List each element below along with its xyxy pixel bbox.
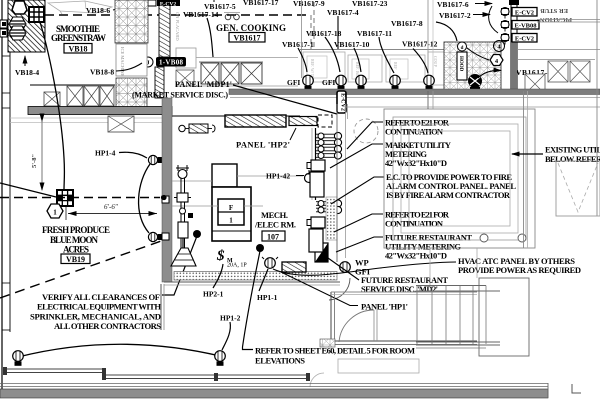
svg-text:CONTINUATION: CONTINUATION <box>385 219 444 229</box>
svg-text:REF: REF <box>393 62 398 70</box>
svg-text:20A, 1P: 20A, 1P <box>227 263 247 269</box>
svg-text:107: 107 <box>267 233 279 242</box>
svg-text:ELECTRICAL EQUIPMENT WITH: ELECTRICAL EQUIPMENT WITH <box>37 302 161 312</box>
svg-text:ICE MACHINE: ICE MACHINE <box>120 47 125 77</box>
svg-text:VB1617-14: VB1617-14 <box>183 10 219 19</box>
svg-text:VB1617-11: VB1617-11 <box>357 29 392 38</box>
svg-text:GFI: GFI <box>322 78 335 87</box>
svg-text:VB1617-12: VB1617-12 <box>402 40 438 49</box>
svg-text:42"Wx32"Hx10"D: 42"Wx32"Hx10"D <box>385 158 447 168</box>
svg-text:E-CV2: E-CV2 <box>515 36 534 43</box>
svg-text:VB1617-18: VB1617-18 <box>306 29 342 38</box>
svg-text:$: $ <box>216 248 225 264</box>
svg-text:E-VB08: E-VB08 <box>514 23 537 30</box>
svg-text:E-CV2: E-CV2 <box>340 93 346 111</box>
svg-text:IS BY FIRE ALARM CONTRACTOR: IS BY FIRE ALARM CONTRACTOR <box>386 190 511 200</box>
svg-text:VB18-4: VB18-4 <box>15 68 39 77</box>
svg-text:4: 4 <box>498 45 501 51</box>
svg-text:GREENSTRAW: GREENSTRAW <box>51 33 106 43</box>
svg-text:VB18-6: VB18-6 <box>86 6 110 15</box>
svg-text:ER STUB: ER STUB <box>540 7 568 14</box>
svg-text:ELEVATIONS: ELEVATIONS <box>255 356 305 366</box>
svg-text:EXISTING UTIL: EXISTING UTIL <box>545 145 600 155</box>
svg-text:PROVIDE POWER AS REQUIRED: PROVIDE POWER AS REQUIRED <box>458 265 581 275</box>
svg-text:VERIFY ALL CLEARANCES OF: VERIFY ALL CLEARANCES OF <box>42 292 160 302</box>
svg-text:HP2-1: HP2-1 <box>203 290 224 299</box>
svg-text:VB19: VB19 <box>66 255 85 264</box>
svg-text:REFER TO SHEET E60, DETAIL 5 F: REFER TO SHEET E60, DETAIL 5 FOR ROOM <box>255 346 415 356</box>
svg-text:6'-6": 6'-6" <box>104 203 118 211</box>
svg-text:VB18-8: VB18-8 <box>90 68 114 77</box>
svg-text:VB1617-23: VB1617-23 <box>352 0 388 8</box>
svg-text:F: F <box>229 204 233 212</box>
svg-text:HP1-4: HP1-4 <box>95 149 116 158</box>
svg-text:MECH.: MECH. <box>261 210 288 220</box>
svg-text:E-CV2: E-CV2 <box>515 10 534 17</box>
svg-text:VB1617-1: VB1617-1 <box>282 40 314 49</box>
svg-text:HP1-2: HP1-2 <box>220 314 241 323</box>
svg-text:VB1617: VB1617 <box>233 34 260 43</box>
svg-text:HOOD: HOOD <box>458 56 463 72</box>
svg-text:(MARKET SERVICE DISC.): (MARKET SERVICE DISC.) <box>132 91 228 100</box>
svg-text:PANEL 'MDP1': PANEL 'MDP1' <box>175 80 232 89</box>
svg-text:VB1617-6: VB1617-6 <box>437 0 469 9</box>
svg-text:COUP: COUP <box>433 56 438 67</box>
svg-text:FRESH PRODUCE: FRESH PRODUCE <box>42 225 110 235</box>
svg-text:PANEL 'HP2': PANEL 'HP2' <box>236 140 290 150</box>
svg-text:1-VB08: 1-VB08 <box>159 59 184 67</box>
svg-text:VB1617-9: VB1617-9 <box>293 0 325 8</box>
svg-text:BELOW. REFER: BELOW. REFER <box>545 154 600 164</box>
svg-text:VB18: VB18 <box>68 45 87 54</box>
svg-text:HP1-1: HP1-1 <box>257 293 278 302</box>
svg-text:GFI: GFI <box>287 78 300 87</box>
svg-text:/ELEC RM.: /ELEC RM. <box>254 220 296 230</box>
svg-text:ON PLACARD: ON PLACARD <box>175 12 180 41</box>
svg-text:1: 1 <box>229 217 233 225</box>
svg-text:VB1617-4: VB1617-4 <box>327 8 359 17</box>
svg-text:VB1617-10: VB1617-10 <box>334 40 370 49</box>
svg-text:HP1-42: HP1-42 <box>266 172 290 181</box>
svg-text:ALL OTHER CONTRACTORS: ALL OTHER CONTRACTORS <box>54 321 161 331</box>
svg-text:d: d <box>461 46 464 51</box>
svg-text:GEN. COOKING: GEN. COOKING <box>216 23 286 33</box>
svg-text:VB1617-8: VB1617-8 <box>391 19 423 28</box>
svg-text:E-CV2: E-CV2 <box>160 1 176 7</box>
svg-text:CONTINUATION: CONTINUATION <box>385 127 444 137</box>
svg-text:42"Wx32"Hx10"D: 42"Wx32"Hx10"D <box>385 251 447 261</box>
svg-text:SPRINKLER, MECHANICAL, AND: SPRINKLER, MECHANICAL, AND <box>30 311 161 321</box>
svg-text:VB1617-17: VB1617-17 <box>243 0 279 7</box>
svg-text:VB1617-2: VB1617-2 <box>439 11 471 20</box>
svg-text:5'-8": 5'-8" <box>31 154 38 168</box>
svg-text:1: 1 <box>53 209 57 217</box>
svg-text:ACRES: ACRES <box>63 245 89 255</box>
svg-text:BLUE MOON: BLUE MOON <box>50 235 99 245</box>
